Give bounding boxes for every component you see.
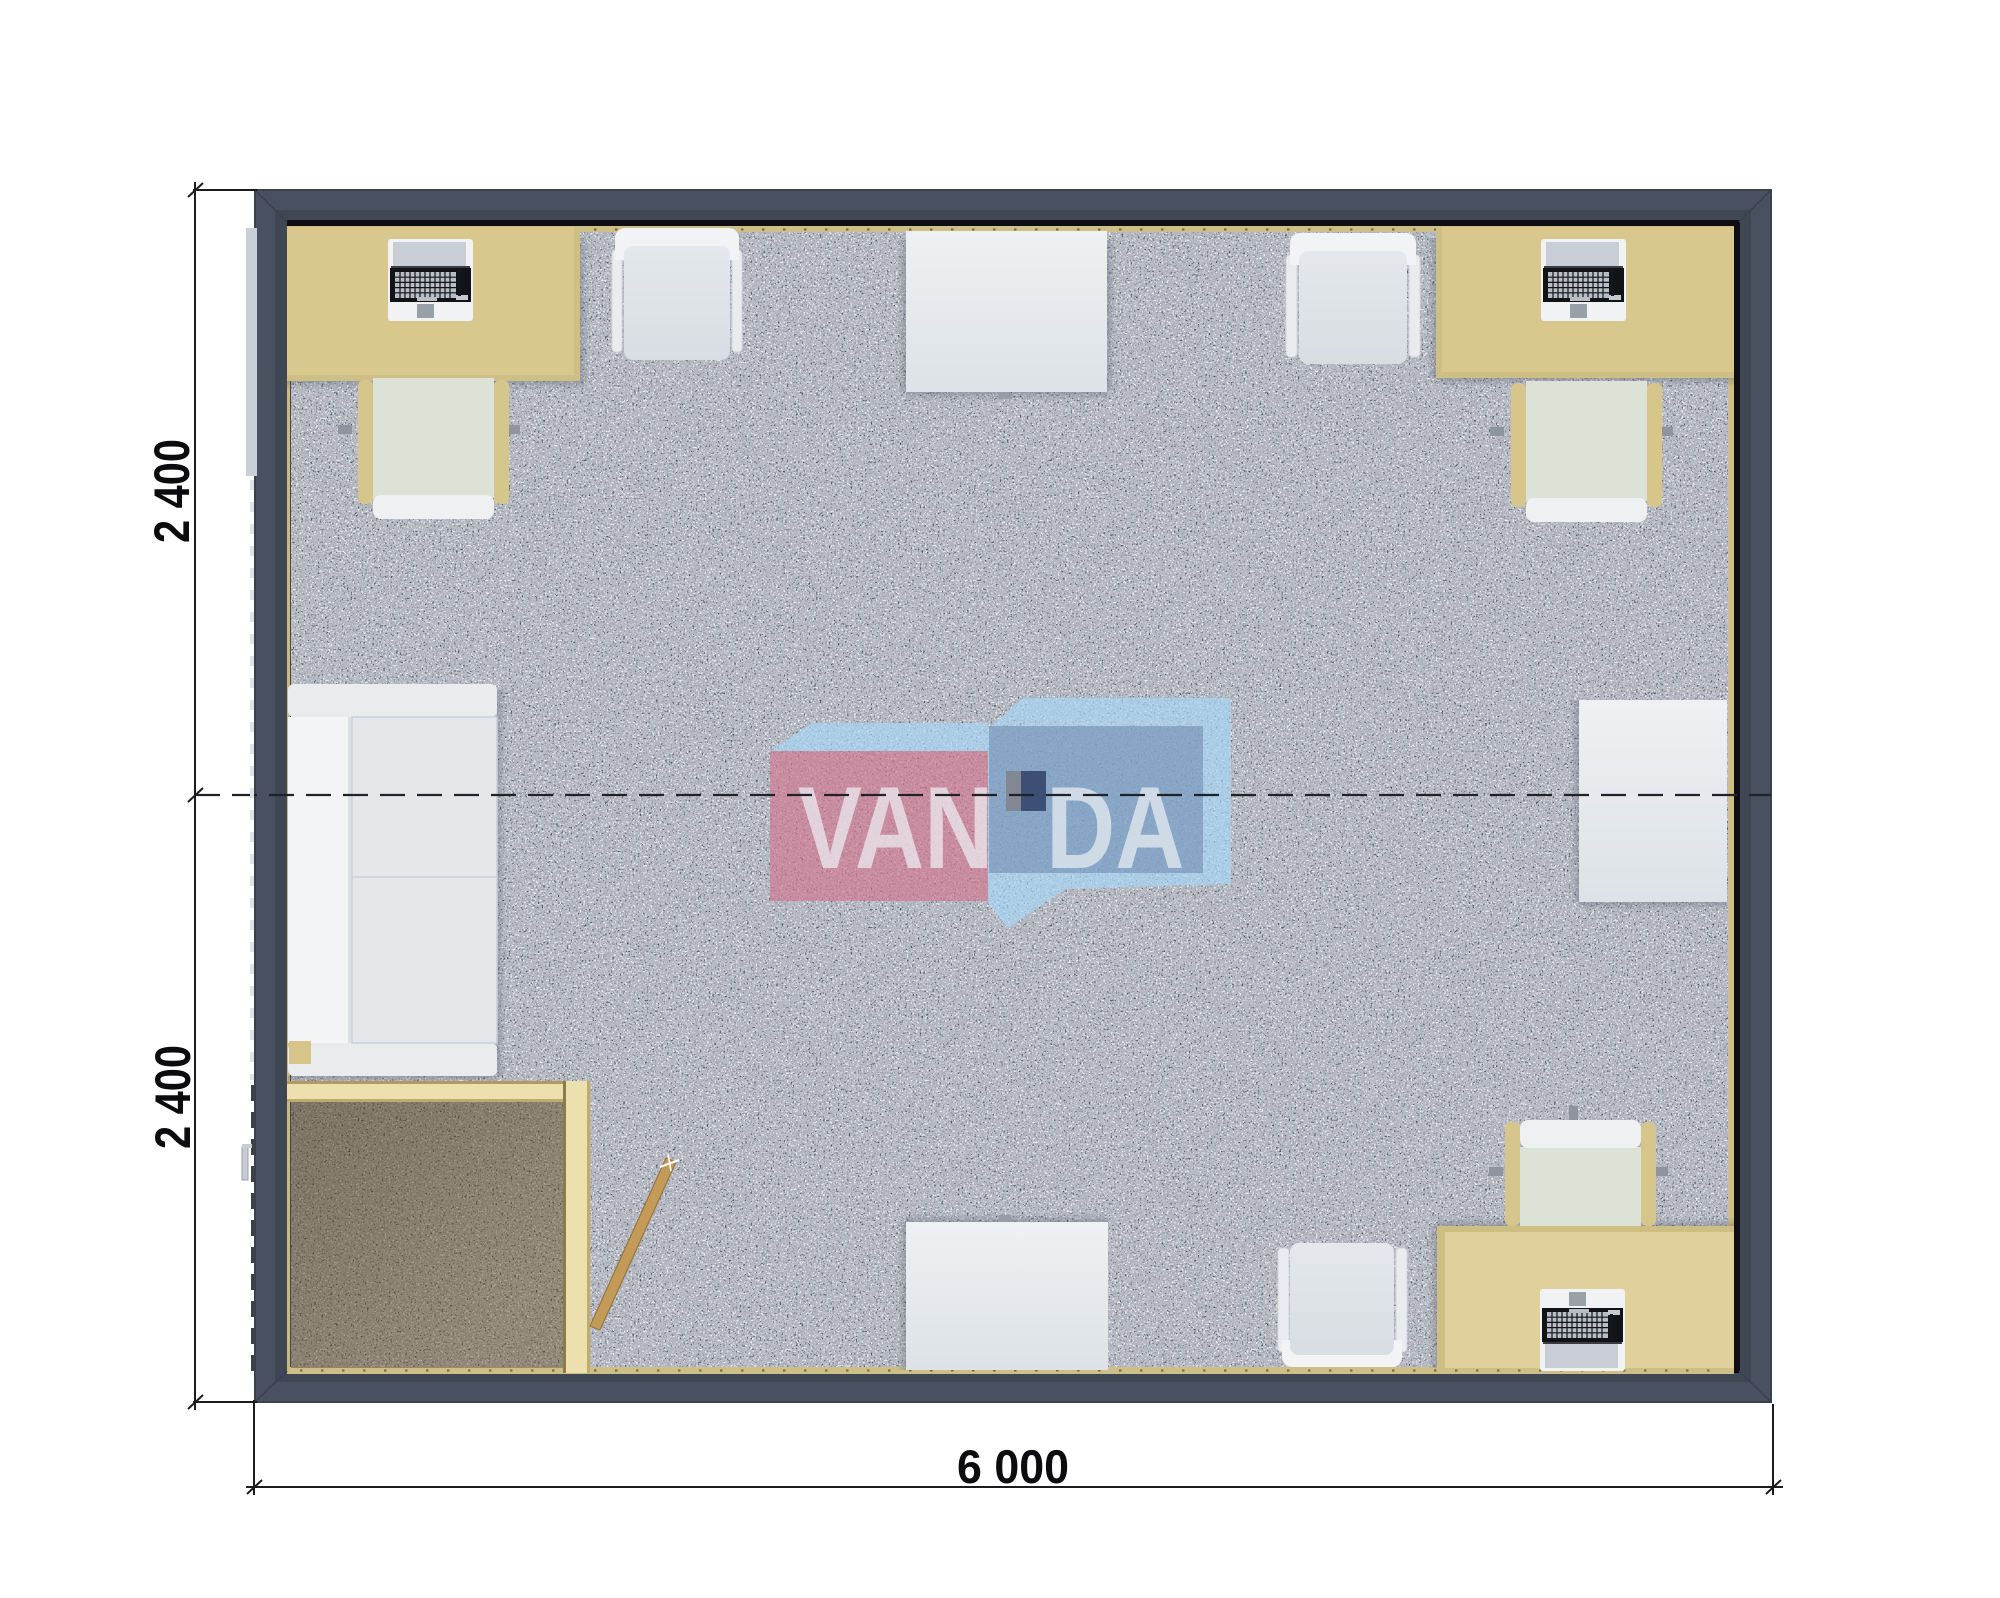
- svg-text:6 000: 6 000: [957, 1440, 1069, 1493]
- svg-text:VAN: VAN: [798, 762, 993, 893]
- svg-text:2 400: 2 400: [145, 1045, 201, 1149]
- svg-text:DA: DA: [1046, 762, 1185, 893]
- svg-text:2 400: 2 400: [144, 439, 200, 543]
